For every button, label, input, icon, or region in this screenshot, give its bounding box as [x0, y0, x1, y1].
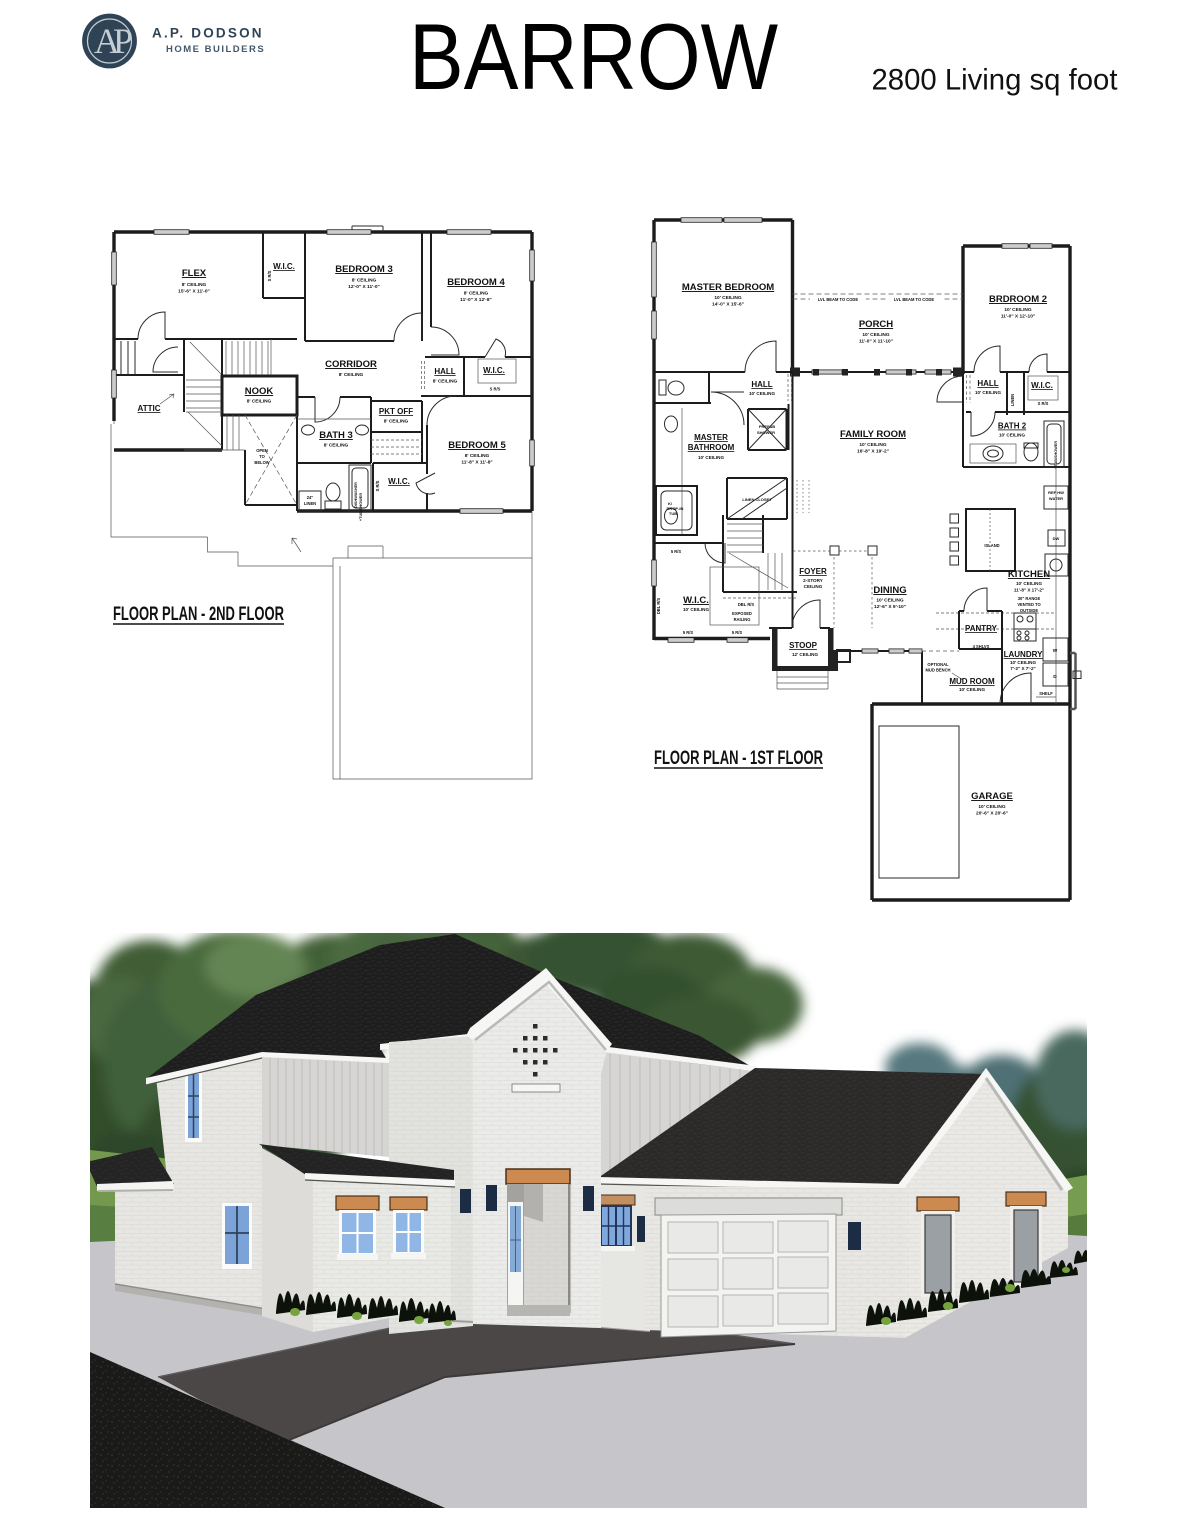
svg-text:D: D: [1053, 674, 1057, 680]
svg-text:BATH 3: BATH 3: [319, 430, 353, 441]
svg-text:LVL BEAM TO CODE: LVL BEAM TO CODE: [818, 297, 859, 302]
svg-text:WATER: WATER: [1049, 496, 1063, 501]
svg-text:PREFAB: PREFAB: [759, 424, 775, 429]
svg-text:16'-8" X 19'-2": 16'-8" X 19'-2": [857, 449, 889, 455]
svg-text:5 R/S: 5 R/S: [671, 549, 682, 554]
svg-text:PKT OFF: PKT OFF: [379, 407, 413, 416]
svg-text:11'-8" X 17'-2": 11'-8" X 17'-2": [1014, 588, 1044, 593]
svg-text:10' CEILING: 10' CEILING: [683, 607, 710, 612]
svg-text:10' CEILING: 10' CEILING: [1016, 581, 1043, 586]
svg-text:12'-0" X 11'-0": 12'-0" X 11'-0": [348, 284, 380, 290]
svg-text:8' CEILING: 8' CEILING: [464, 291, 489, 297]
svg-text:S R/S: S R/S: [1038, 401, 1049, 406]
svg-text:TO: TO: [259, 454, 265, 459]
svg-text:8' CEILING: 8' CEILING: [465, 453, 490, 459]
svg-text:15'-6" X 11'-0": 15'-6" X 11'-0": [178, 289, 210, 295]
svg-text:MASTER BEDROOM: MASTER BEDROOM: [682, 282, 774, 293]
svg-text:W.I.C.: W.I.C.: [683, 595, 709, 606]
svg-text:8' CEILING: 8' CEILING: [339, 372, 364, 378]
svg-text:OPTIONAL: OPTIONAL: [927, 662, 949, 667]
svg-text:SHELF: SHELF: [1039, 691, 1053, 696]
svg-text:4 SHLVS: 4 SHLVS: [973, 644, 990, 649]
svg-text:10' CEILING: 10' CEILING: [1010, 660, 1037, 665]
svg-text:LINEN: LINEN: [304, 501, 316, 506]
svg-text:8' CEILING: 8' CEILING: [247, 399, 272, 405]
svg-text:W: W: [1053, 648, 1058, 654]
svg-text:LINEN CLOSET: LINEN CLOSET: [742, 497, 772, 502]
svg-text:12'-6" X 9'-10": 12'-6" X 9'-10": [874, 604, 906, 610]
svg-text:12' CEILING: 12' CEILING: [792, 652, 819, 657]
svg-text:VENTED TO: VENTED TO: [1017, 602, 1041, 607]
svg-text:DBL R/S: DBL R/S: [656, 598, 661, 615]
svg-text:11'-0" X 12'-8": 11'-0" X 12'-8": [460, 297, 492, 303]
svg-text:LAUNDRY: LAUNDRY: [1004, 650, 1043, 659]
svg-text:2-STORY: 2-STORY: [803, 578, 823, 583]
svg-text:RAILING: RAILING: [734, 617, 751, 622]
svg-text:BEDROOM 3: BEDROOM 3: [335, 264, 393, 275]
svg-text:BATHROOM: BATHROOM: [688, 443, 735, 452]
svg-text:MASTER: MASTER: [694, 433, 728, 442]
svg-text:+TUB/SHOWER: +TUB/SHOWER: [1054, 441, 1058, 469]
svg-text:BEDROOM 4: BEDROOM 4: [447, 277, 505, 288]
svg-text:FOYER: FOYER: [799, 567, 827, 576]
svg-text:HALL: HALL: [434, 367, 455, 376]
svg-text:11'-0" X 12'-10": 11'-0" X 12'-10": [1001, 314, 1035, 320]
svg-text:10' CEILING: 10' CEILING: [749, 391, 776, 396]
svg-text:5 R/S: 5 R/S: [732, 630, 743, 635]
svg-text:BARROW: BARROW: [409, 4, 778, 109]
svg-text:10' CEILING: 10' CEILING: [975, 390, 1002, 395]
svg-text:10' CEILING: 10' CEILING: [859, 442, 887, 448]
svg-text:8' CEILING: 8' CEILING: [384, 419, 409, 425]
svg-text:REF HW: REF HW: [1048, 490, 1064, 495]
svg-text:W.I.C.: W.I.C.: [388, 477, 410, 486]
svg-text:PANTRY: PANTRY: [965, 624, 998, 633]
svg-text:NOOK: NOOK: [245, 386, 274, 397]
svg-text:BEDROOM 5: BEDROOM 5: [448, 440, 506, 451]
svg-text:CORRIDOR: CORRIDOR: [325, 359, 377, 370]
svg-text:8' CEILING: 8' CEILING: [352, 278, 377, 284]
svg-text:11'-0" X 11'-10": 11'-0" X 11'-10": [859, 339, 893, 345]
svg-text:2800 Living sq foot: 2800 Living sq foot: [872, 64, 1119, 97]
svg-text:EXPOSED: EXPOSED: [732, 611, 752, 616]
svg-text:14'-0" X 15'-6": 14'-0" X 15'-6": [712, 302, 744, 308]
svg-text:LVL BEAM TO CODE: LVL BEAM TO CODE: [894, 297, 935, 302]
svg-text:ATTIC: ATTIC: [138, 404, 161, 413]
svg-text:HALL: HALL: [977, 379, 998, 388]
svg-text:GARAGE: GARAGE: [971, 791, 1013, 802]
svg-text:8' CEILING: 8' CEILING: [182, 282, 207, 288]
svg-text:TUB: TUB: [669, 511, 677, 516]
svg-text:10' CEILING: 10' CEILING: [959, 687, 986, 692]
svg-text:FLOOR PLAN - 2ND FLOOR: FLOOR PLAN - 2ND FLOOR: [113, 604, 284, 625]
svg-text:DW: DW: [1053, 536, 1060, 541]
svg-text:MUD BENCH: MUD BENCH: [925, 668, 950, 673]
svg-text:24": 24": [307, 495, 314, 500]
svg-text:BATH 2: BATH 2: [998, 422, 1027, 431]
svg-text:20'-6" X 20'-6": 20'-6" X 20'-6": [976, 811, 1008, 817]
svg-text:MUD ROOM: MUD ROOM: [949, 677, 995, 686]
svg-text:10' CEILING: 10' CEILING: [978, 804, 1006, 810]
svg-text:CEILING: CEILING: [804, 584, 823, 589]
svg-text:BRDROOM 2: BRDROOM 2: [989, 294, 1047, 305]
svg-text:+TUB/SHOWER: +TUB/SHOWER: [359, 493, 363, 521]
svg-text:KITCHEN: KITCHEN: [1008, 569, 1050, 580]
svg-text:DISHWASHER: DISHWASHER: [354, 482, 358, 508]
svg-text:ISLAND: ISLAND: [984, 543, 999, 548]
svg-text:DINING: DINING: [873, 585, 906, 596]
svg-text:W.I.C.: W.I.C.: [1031, 381, 1053, 390]
svg-text:10' CEILING: 10' CEILING: [698, 455, 725, 460]
svg-text:SHOWER: SHOWER: [757, 430, 775, 435]
svg-text:W.I.C.: W.I.C.: [273, 262, 295, 271]
svg-text:OPEN: OPEN: [256, 448, 268, 453]
svg-text:10' CEILING: 10' CEILING: [1004, 307, 1032, 313]
svg-text:8' CEILING: 8' CEILING: [433, 379, 458, 385]
svg-text:8' CEILING: 8' CEILING: [324, 443, 349, 449]
svg-text:PORCH: PORCH: [859, 319, 893, 330]
svg-text:BELOW: BELOW: [254, 460, 269, 465]
svg-text:FLOOR PLAN - 1ST FLOOR: FLOOR PLAN - 1ST FLOOR: [654, 748, 823, 769]
svg-text:FAMILY ROOM: FAMILY ROOM: [840, 429, 906, 440]
svg-text:10' CEILING: 10' CEILING: [876, 598, 904, 604]
svg-text:DBL R/S: DBL R/S: [738, 602, 755, 607]
svg-text:W.I.C.: W.I.C.: [483, 366, 505, 375]
svg-text:30" RANGE: 30" RANGE: [1018, 596, 1041, 601]
svg-text:OUTSIDE: OUTSIDE: [1020, 608, 1038, 613]
svg-text:7'-2" X 7'-2": 7'-2" X 7'-2": [1010, 666, 1035, 671]
svg-text:S R/S: S R/S: [490, 387, 501, 392]
svg-text:FLEX: FLEX: [182, 268, 207, 279]
svg-text:5 R/S: 5 R/S: [683, 630, 694, 635]
svg-text:11'-8" X 11'-8": 11'-8" X 11'-8": [461, 460, 492, 466]
svg-text:S R/S: S R/S: [375, 480, 380, 491]
svg-text:10' CEILING: 10' CEILING: [999, 433, 1026, 438]
svg-text:A.P. DODSON: A.P. DODSON: [152, 26, 264, 41]
svg-text:HOME BUILDERS: HOME BUILDERS: [166, 44, 265, 55]
svg-text:STOOP: STOOP: [789, 641, 818, 650]
svg-text:10' CEILING: 10' CEILING: [714, 295, 742, 301]
svg-text:S R/S: S R/S: [267, 270, 272, 281]
svg-text:HALL: HALL: [751, 380, 772, 389]
svg-text:LINEN: LINEN: [1010, 394, 1015, 406]
svg-text:10' CEILING: 10' CEILING: [862, 332, 890, 338]
